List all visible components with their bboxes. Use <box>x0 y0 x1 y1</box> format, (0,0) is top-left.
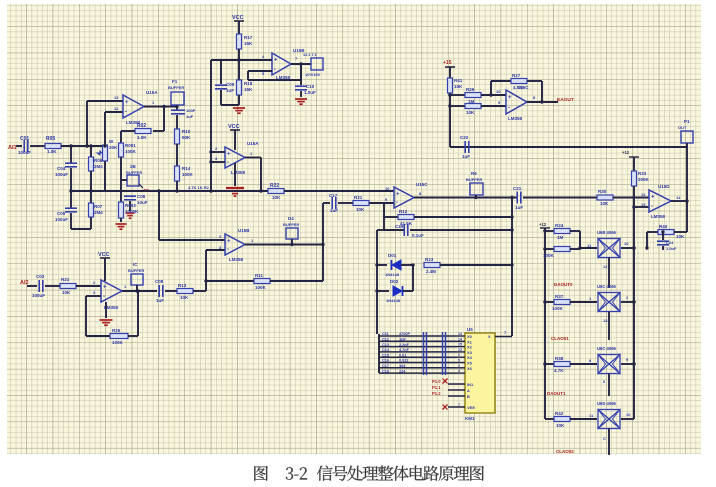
svg-text:10K: 10K <box>62 290 71 295</box>
svg-text:C14: C14 <box>382 348 390 352</box>
svg-text:BUFFER: BUFFER <box>128 268 144 273</box>
svg-text:224: 224 <box>399 369 406 373</box>
svg-text:15K: 15K <box>244 41 253 46</box>
svg-text:4: 4 <box>458 369 460 373</box>
svg-text:F1: F1 <box>172 79 178 84</box>
svg-text:+12: +12 <box>622 150 630 155</box>
svg-text:100uF: 100uF <box>55 217 68 222</box>
svg-text:BUFFER: BUFFER <box>126 170 142 175</box>
svg-text:R10: R10 <box>182 129 191 134</box>
svg-text:R17: R17 <box>244 35 253 40</box>
svg-text:DAOUT0: DAOUT0 <box>554 282 573 287</box>
svg-text:P1: P1 <box>684 119 690 124</box>
svg-text:DAOUT1: DAOUT1 <box>547 391 566 396</box>
svg-text:2M4: 2M4 <box>94 164 103 169</box>
svg-text:10uF: 10uF <box>137 200 148 205</box>
svg-text:50K: 50K <box>182 135 191 140</box>
svg-text:1uF: 1uF <box>330 208 338 213</box>
svg-text:13: 13 <box>603 318 608 323</box>
svg-text:X5: X5 <box>467 361 473 366</box>
svg-text:C03: C03 <box>36 274 45 279</box>
svg-text:14: 14 <box>676 195 681 200</box>
svg-text:LM358: LM358 <box>508 116 523 121</box>
svg-text:U15A: U15A <box>146 90 158 95</box>
svg-text:U6D 4066: U6D 4066 <box>597 401 617 406</box>
svg-text:X: X <box>488 334 491 339</box>
svg-text:X4: X4 <box>467 355 473 360</box>
svg-text:10: 10 <box>624 241 629 246</box>
svg-text:12: 12 <box>603 264 608 269</box>
svg-text:13: 13 <box>114 95 119 100</box>
svg-text:100P: 100P <box>186 108 196 113</box>
svg-text:LM358: LM358 <box>229 257 244 262</box>
svg-text:R41: R41 <box>454 78 463 83</box>
svg-text:C10: C10 <box>306 84 315 89</box>
svg-text:1uF: 1uF <box>186 114 194 119</box>
svg-text:+: + <box>651 195 655 201</box>
svg-text:-: - <box>103 294 105 300</box>
svg-text:+: + <box>125 100 129 106</box>
svg-text:U5: U5 <box>467 327 473 332</box>
svg-text:100K: 100K <box>112 340 124 345</box>
svg-text:VCC: VCC <box>228 124 240 130</box>
svg-text:U6C 4066: U6C 4066 <box>597 346 617 351</box>
svg-text:+: + <box>103 285 107 291</box>
svg-text:10K: 10K <box>356 207 365 212</box>
svg-text:1uF: 1uF <box>226 88 234 93</box>
svg-text:+: + <box>508 95 512 101</box>
svg-text:10: 10 <box>496 89 501 94</box>
svg-text:10: 10 <box>626 412 631 417</box>
svg-text:12: 12 <box>114 106 119 111</box>
svg-text:C21: C21 <box>513 186 522 191</box>
svg-text:-: - <box>274 67 276 73</box>
svg-text:R26: R26 <box>466 87 475 92</box>
svg-text:0.01: 0.01 <box>399 353 406 357</box>
svg-text:R26: R26 <box>112 328 121 333</box>
svg-text:R22: R22 <box>270 183 279 189</box>
svg-text:R11: R11 <box>255 273 264 278</box>
svg-text:X0: X0 <box>467 334 473 339</box>
svg-text:2.4M: 2.4M <box>426 269 436 274</box>
svg-text:C17: C17 <box>382 364 389 368</box>
svg-text:U15D: U15D <box>658 184 670 189</box>
svg-text:5: 5 <box>458 359 460 363</box>
svg-text:R40: R40 <box>659 224 668 229</box>
svg-text:1.0K: 1.0K <box>47 149 57 154</box>
svg-text:1N4148: 1N4148 <box>386 298 401 303</box>
svg-text:-: - <box>227 247 229 253</box>
svg-text:100K: 100K <box>182 172 194 177</box>
svg-text:100uF: 100uF <box>18 150 31 155</box>
svg-text:P1.2: P1.2 <box>432 391 441 396</box>
svg-text:C: C <box>603 436 606 441</box>
svg-text:R05: R05 <box>46 136 55 142</box>
svg-text:R27: R27 <box>512 73 521 78</box>
svg-text:R24: R24 <box>555 223 564 228</box>
svg-text:R13: R13 <box>178 283 187 288</box>
svg-text:C04: C04 <box>57 166 66 171</box>
svg-text:+: + <box>227 151 231 157</box>
svg-text:20K: 20K <box>109 145 118 150</box>
svg-text:U6C 4066: U6C 4066 <box>597 284 617 289</box>
svg-text:1uF: 1uF <box>156 298 164 303</box>
svg-text:R21: R21 <box>61 277 70 282</box>
svg-text:4.7K: 4.7K <box>554 368 564 373</box>
svg-text:C05: C05 <box>57 211 66 216</box>
svg-text:13: 13 <box>641 202 646 207</box>
svg-text:VCC: VCC <box>232 15 244 21</box>
svg-text:13: 13 <box>458 332 462 336</box>
svg-text:C17: C17 <box>329 193 338 198</box>
svg-text:R02: R02 <box>137 123 146 129</box>
svg-text:4700P: 4700P <box>399 332 410 336</box>
svg-text:200K: 200K <box>638 177 650 182</box>
svg-text:-: - <box>125 110 127 116</box>
svg-text:C09: C09 <box>226 82 235 87</box>
svg-text:R37: R37 <box>555 294 564 299</box>
svg-text:D02: D02 <box>390 279 399 284</box>
svg-text:X1: X1 <box>467 339 473 344</box>
svg-text:LM358: LM358 <box>231 170 246 175</box>
svg-text:X2: X2 <box>467 345 473 350</box>
svg-text:100K: 100K <box>552 306 564 311</box>
svg-text:A: A <box>467 388 470 393</box>
svg-text:C13: C13 <box>382 343 389 347</box>
svg-text:R6: R6 <box>471 171 477 176</box>
svg-text:U16A: U16A <box>247 141 259 146</box>
svg-text:R06: R06 <box>94 158 103 163</box>
svg-text:CLAO02: CLAO02 <box>556 449 574 454</box>
svg-text:C22: C22 <box>460 135 469 140</box>
svg-text:1N4148: 1N4148 <box>385 272 400 277</box>
svg-text:100K: 100K <box>255 285 267 290</box>
svg-text:14: 14 <box>458 337 462 341</box>
svg-text:-: - <box>508 105 510 111</box>
svg-text:X6: X6 <box>467 366 473 371</box>
svg-text:KM1: KM1 <box>465 416 475 421</box>
svg-text:C01: C01 <box>20 136 29 142</box>
svg-text:1000K: 1000K <box>125 209 139 214</box>
svg-text:R003: R003 <box>125 203 136 208</box>
svg-text:12: 12 <box>458 348 462 352</box>
svg-text:D01: D01 <box>388 253 397 258</box>
svg-text:1.0uF: 1.0uF <box>304 90 316 95</box>
svg-text:-: - <box>651 204 653 210</box>
svg-text:X3: X3 <box>467 350 473 355</box>
svg-text:U15B: U15B <box>238 228 250 233</box>
svg-text:R07: R07 <box>94 204 103 209</box>
svg-text:100K: 100K <box>543 253 555 258</box>
svg-text:1.0K: 1.0K <box>137 135 147 140</box>
svg-text:D4: D4 <box>288 216 294 221</box>
svg-text:C06: C06 <box>137 194 146 199</box>
svg-text:BUFFER: BUFFER <box>466 177 482 182</box>
svg-text:4.7K 1K R2: 4.7K 1K R2 <box>188 185 210 190</box>
svg-text:2B: 2B <box>130 164 137 169</box>
svg-text:1M: 1M <box>557 235 564 240</box>
svg-text:1.0uF: 1.0uF <box>666 246 677 251</box>
svg-text:+15: +15 <box>443 60 452 66</box>
svg-text:P1.1: P1.1 <box>432 385 441 390</box>
svg-text:10K: 10K <box>272 195 281 200</box>
svg-text:C11: C11 <box>382 332 389 336</box>
svg-text:104: 104 <box>399 364 406 368</box>
svg-text:IN1: IN1 <box>467 382 474 387</box>
svg-text:R14: R14 <box>182 166 191 171</box>
svg-text:100K: 100K <box>125 149 137 154</box>
svg-text:VEE: VEE <box>467 405 475 410</box>
svg-text:1uF: 1uF <box>515 205 523 210</box>
svg-text:C16: C16 <box>382 359 389 363</box>
svg-text:C20: C20 <box>395 224 404 229</box>
svg-text:R42: R42 <box>555 411 564 416</box>
svg-text:R38: R38 <box>555 356 564 361</box>
svg-text:C15: C15 <box>382 353 389 357</box>
svg-text:R23: R23 <box>425 257 434 262</box>
svg-text:U6B 4066: U6B 4066 <box>597 230 617 235</box>
svg-text:0.1uF: 0.1uF <box>412 233 424 238</box>
svg-text:+: + <box>396 191 400 197</box>
svg-text:+12: +12 <box>539 222 547 227</box>
svg-text:15: 15 <box>458 343 462 347</box>
svg-text:12: 12 <box>641 192 646 197</box>
svg-text:AI1: AI1 <box>8 145 17 151</box>
svg-text:4.7M: 4.7M <box>513 85 523 90</box>
svg-text:R18: R18 <box>244 81 253 86</box>
svg-text:15K: 15K <box>244 87 253 92</box>
svg-text:EAOUT: EAOUT <box>557 97 574 103</box>
svg-text:+: + <box>274 58 278 64</box>
svg-text:R30: R30 <box>598 189 607 194</box>
svg-text:7: 7 <box>458 403 460 407</box>
svg-text:-: - <box>227 160 229 166</box>
svg-text:2.2nF: 2.2nF <box>399 343 410 347</box>
svg-text:B: B <box>467 394 470 399</box>
svg-text:10K: 10K <box>180 295 189 300</box>
svg-text:10V/16V: 10V/16V <box>305 72 321 77</box>
svg-text:4.7nF: 4.7nF <box>399 348 410 352</box>
svg-text:BUFFER: BUFFER <box>283 222 299 227</box>
svg-text:C18: C18 <box>382 369 389 373</box>
svg-text:100uF: 100uF <box>55 172 68 177</box>
svg-text:+: + <box>227 238 231 244</box>
svg-text:10K: 10K <box>556 423 565 428</box>
svg-text:C12: C12 <box>382 338 389 342</box>
svg-text:R33: R33 <box>638 171 647 176</box>
svg-text:12.1 7.1: 12.1 7.1 <box>303 53 317 57</box>
svg-text:2M4: 2M4 <box>94 210 103 215</box>
svg-text:C24: C24 <box>666 240 674 245</box>
svg-text:CLAO01: CLAO01 <box>551 336 569 341</box>
svg-text:VCC: VCC <box>98 252 110 258</box>
svg-text:1nF: 1nF <box>399 338 406 342</box>
svg-text:C08: C08 <box>155 279 164 284</box>
svg-text:1: 1 <box>458 353 460 357</box>
svg-text:R21: R21 <box>354 195 363 200</box>
svg-text:10K: 10K <box>676 234 685 239</box>
svg-text:P1.0: P1.0 <box>432 379 441 384</box>
svg-text:2: 2 <box>458 364 460 368</box>
svg-text:15K: 15K <box>454 84 463 89</box>
svg-text:U15C: U15C <box>416 182 428 187</box>
svg-text:BUFFER: BUFFER <box>168 85 184 90</box>
svg-text:R12: R12 <box>399 209 408 214</box>
svg-text:10K: 10K <box>466 110 475 115</box>
svg-text:OUT: OUT <box>678 125 687 130</box>
svg-text:10K: 10K <box>600 201 609 206</box>
svg-text:IC: IC <box>133 262 138 267</box>
svg-text:10: 10 <box>385 186 390 191</box>
svg-text:-: - <box>396 200 398 206</box>
svg-text:LM358: LM358 <box>651 214 666 219</box>
svg-text:1uF: 1uF <box>462 154 470 159</box>
svg-text:0.022: 0.022 <box>399 359 409 363</box>
svg-text:100uF: 100uF <box>32 293 45 298</box>
svg-text:R001: R001 <box>125 143 136 148</box>
